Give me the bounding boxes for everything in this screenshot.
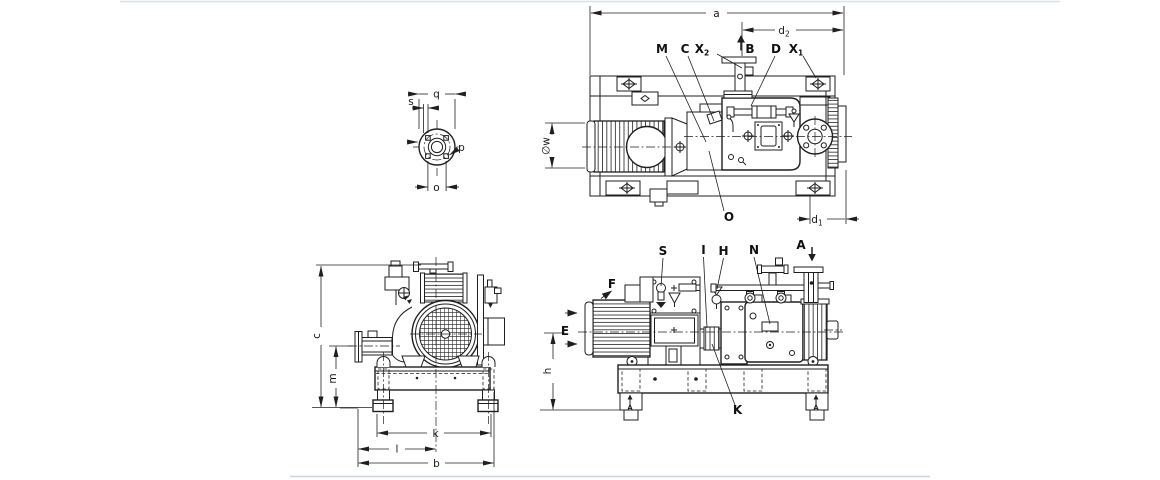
volute-outline [393, 307, 413, 362]
exhaust-piping [711, 258, 834, 303]
casing-foot-right [458, 356, 479, 367]
label-dim-a: a [713, 8, 719, 20]
label-dim-m: m [327, 373, 339, 383]
label-dim-d2: d2 [778, 25, 790, 39]
top-view [545, 6, 859, 224]
side-view [540, 247, 845, 420]
label-port-m: M [656, 42, 668, 56]
label-dim-k: k [432, 428, 439, 440]
label-port-c: C [681, 42, 690, 56]
flange-outer [419, 129, 455, 165]
motor-top [587, 121, 668, 172]
rear-panel [478, 275, 505, 365]
label-section-a-right: A [813, 404, 818, 412]
flow-arrow-a [808, 247, 816, 262]
label-dim-s: s [408, 96, 413, 108]
label-port-x2: X2 [695, 42, 709, 58]
label-port-a: A [796, 238, 806, 252]
label-port-e: E [561, 324, 569, 338]
pump-dimension-drawing: qspoad2MCX2BDX1Od1∅wcmklbSIHNAFEKhAA [0, 0, 1160, 480]
label-dim-w: ∅w [541, 137, 553, 155]
pump-end-fins-side [803, 303, 827, 360]
label-port-x1: X1 [789, 42, 803, 58]
flange-detail-view [407, 94, 466, 191]
label-port-d: D [771, 42, 781, 56]
front-view [312, 257, 505, 467]
gas-ballast-valve [758, 258, 789, 285]
pump-side [721, 295, 842, 364]
view-arrow-f [601, 291, 612, 299]
coupling [700, 327, 723, 350]
label-dim-d1: d1 [811, 214, 823, 228]
label-dim-p: p [458, 142, 465, 154]
label-dim-h: h [542, 368, 554, 375]
casing-foot-left [402, 356, 425, 367]
label-section-a-left: A [627, 404, 632, 412]
label-port-h: H [718, 244, 728, 258]
label-port-i: I [701, 243, 705, 257]
label-port-o: O [724, 210, 734, 224]
drawing-canvas: qspoad2MCX2BDX1Od1∅wcmklbSIHNAFEKhAA [0, 0, 1160, 480]
motor-side [585, 277, 653, 357]
label-dim-q: q [433, 89, 440, 101]
flow-arrow-b [737, 35, 745, 51]
label-dim-b: b [433, 458, 440, 470]
label-port-s: S [659, 244, 668, 258]
terminal-box [640, 277, 653, 302]
label-dim-o: o [433, 182, 439, 194]
label-dim-l: l [396, 444, 399, 456]
label-port-k: K [733, 403, 743, 417]
label-flow-b: B [745, 42, 754, 56]
oil-reservoir [423, 274, 464, 302]
valve-cluster-left [385, 261, 412, 305]
label-dim-c: c [311, 333, 323, 339]
label-port-n: N [749, 243, 759, 257]
label-view-f: F [608, 277, 616, 291]
motor-bracket [648, 277, 700, 366]
